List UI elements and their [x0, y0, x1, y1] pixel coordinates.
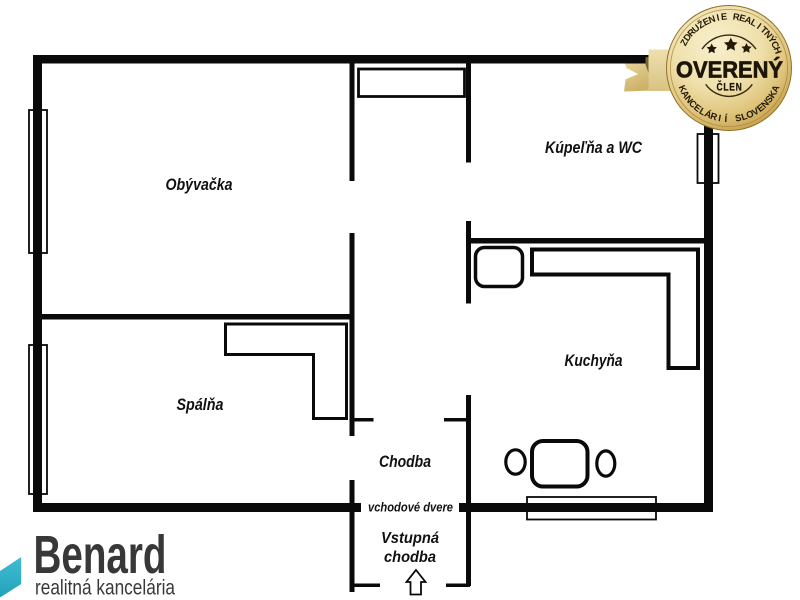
svg-text:vchodové dvere: vchodové dvere	[368, 501, 453, 515]
svg-text:ČLEN: ČLEN	[717, 81, 743, 94]
svg-text:Kúpeľňa a WC: Kúpeľňa a WC	[545, 138, 643, 157]
svg-text:Chodba: Chodba	[379, 452, 431, 471]
svg-text:chodba: chodba	[384, 549, 436, 566]
svg-text:E: E	[720, 10, 727, 22]
svg-text:Spálňa: Spálňa	[177, 395, 224, 414]
svg-text:OVERENÝ: OVERENÝ	[676, 56, 783, 83]
svg-text:realitná kancelária: realitná kancelária	[35, 577, 175, 600]
svg-text:Kuchyňa: Kuchyňa	[565, 351, 623, 370]
svg-text:Vstupná: Vstupná	[381, 530, 439, 547]
svg-text:Obývačka: Obývačka	[166, 175, 233, 194]
